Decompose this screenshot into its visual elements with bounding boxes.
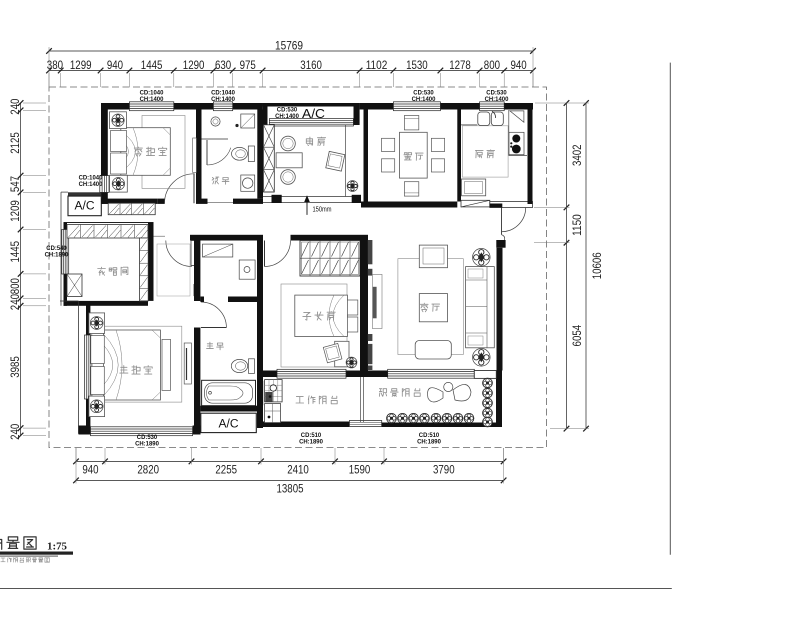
svg-text:3985: 3985 bbox=[8, 356, 22, 378]
svg-text:1278: 1278 bbox=[449, 58, 471, 72]
svg-text:1530: 1530 bbox=[406, 58, 428, 72]
svg-text:2410: 2410 bbox=[287, 463, 309, 477]
svg-text:CH:1890: CH:1890 bbox=[299, 438, 323, 445]
svg-text:CH:1400: CH:1400 bbox=[412, 96, 436, 103]
svg-text:1209: 1209 bbox=[8, 200, 22, 222]
svg-text:1299: 1299 bbox=[70, 58, 92, 72]
svg-text:15769: 15769 bbox=[275, 39, 303, 53]
svg-text:CH:1890: CH:1890 bbox=[135, 440, 159, 447]
svg-text:CH:1400: CH:1400 bbox=[79, 181, 103, 188]
svg-text:380: 380 bbox=[47, 58, 63, 72]
svg-text:800: 800 bbox=[8, 278, 22, 294]
svg-text:10606: 10606 bbox=[590, 252, 604, 279]
svg-text:6054: 6054 bbox=[570, 325, 584, 347]
svg-text:940: 940 bbox=[107, 58, 123, 72]
svg-text:2820: 2820 bbox=[137, 463, 159, 477]
svg-text:3160: 3160 bbox=[300, 58, 322, 72]
svg-text:CH:1400: CH:1400 bbox=[140, 96, 164, 103]
svg-text:240: 240 bbox=[8, 423, 22, 439]
svg-text:975: 975 bbox=[240, 58, 256, 72]
svg-text:1445: 1445 bbox=[8, 241, 22, 263]
svg-text:A/C: A/C bbox=[302, 107, 325, 121]
svg-text:13805: 13805 bbox=[277, 482, 304, 496]
svg-text:547: 547 bbox=[8, 176, 22, 192]
svg-text:1150: 1150 bbox=[570, 214, 584, 236]
svg-text:1590: 1590 bbox=[349, 463, 371, 477]
svg-text:240: 240 bbox=[8, 294, 22, 310]
svg-text:3402: 3402 bbox=[570, 144, 584, 166]
svg-text:940: 940 bbox=[511, 58, 527, 72]
svg-text:1102: 1102 bbox=[366, 58, 388, 72]
svg-text:1:75: 1:75 bbox=[47, 541, 67, 553]
svg-text:CH:1400: CH:1400 bbox=[211, 96, 235, 103]
svg-text:940: 940 bbox=[82, 463, 98, 477]
svg-text:1290: 1290 bbox=[183, 58, 205, 72]
svg-text:CH:1890: CH:1890 bbox=[45, 251, 69, 258]
svg-text:150mm: 150mm bbox=[313, 205, 332, 214]
svg-text:CH:1400: CH:1400 bbox=[275, 113, 299, 120]
svg-text:2255: 2255 bbox=[215, 463, 237, 477]
svg-text:3790: 3790 bbox=[433, 463, 455, 477]
svg-text:630: 630 bbox=[215, 58, 231, 72]
svg-text:800: 800 bbox=[484, 58, 500, 72]
svg-text:240: 240 bbox=[8, 98, 22, 114]
svg-text:A/C: A/C bbox=[75, 201, 95, 213]
svg-text:CH:1400: CH:1400 bbox=[485, 96, 509, 103]
svg-text:CH:1890: CH:1890 bbox=[417, 438, 441, 445]
svg-text:2125: 2125 bbox=[8, 132, 22, 154]
svg-text:1445: 1445 bbox=[141, 58, 163, 72]
svg-text:A/C: A/C bbox=[219, 419, 239, 431]
